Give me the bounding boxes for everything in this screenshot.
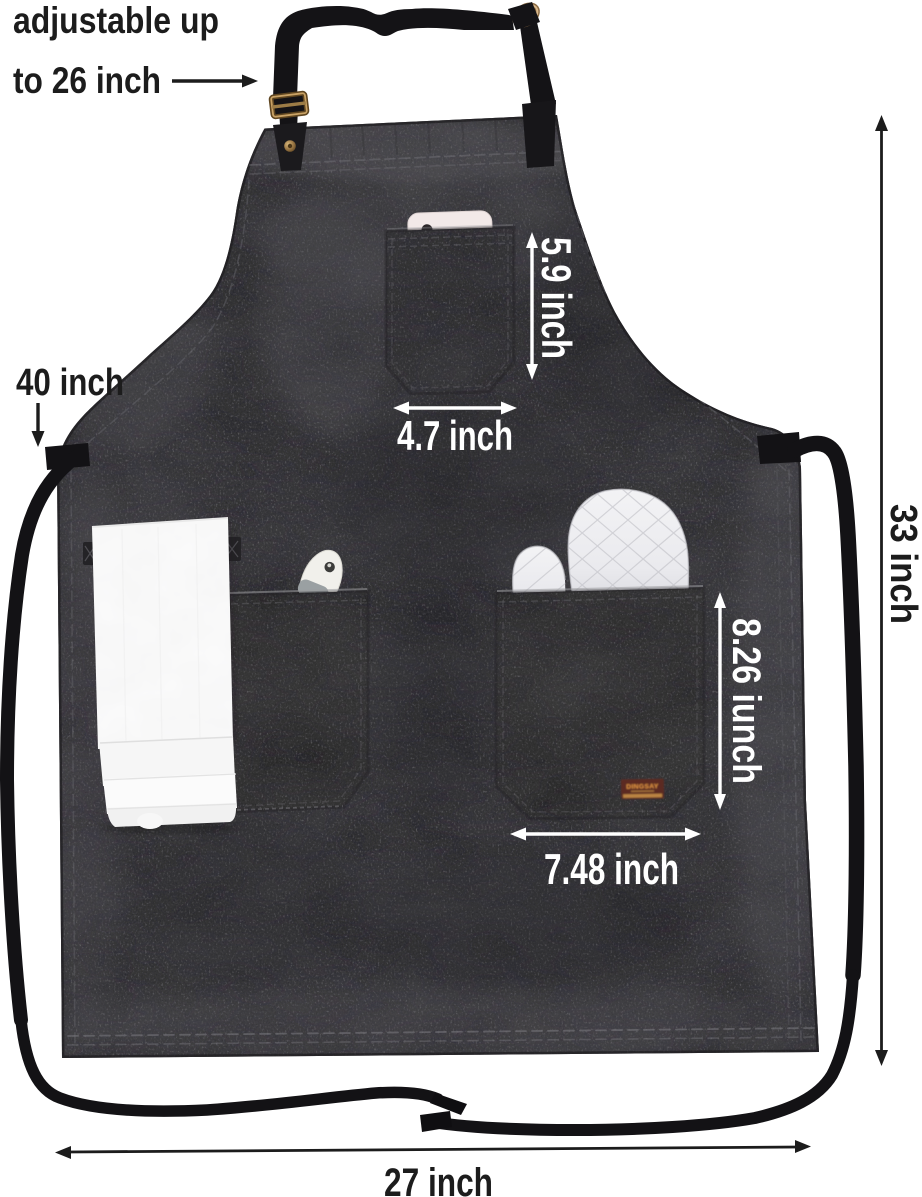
svg-text:33 inch: 33 inch (882, 504, 922, 624)
svg-text:DINGSAY: DINGSAY (626, 783, 659, 791)
svg-text:adjustable up: adjustable up (13, 0, 219, 41)
svg-text:5.9 inch: 5.9 inch (533, 237, 580, 359)
svg-text:7.48 inch: 7.48 inch (544, 845, 679, 894)
svg-text:8.26 iunch: 8.26 iunch (724, 618, 768, 784)
svg-text:to 26 inch: to 26 inch (13, 60, 161, 101)
svg-text:40 inch: 40 inch (16, 362, 124, 404)
svg-text:4.7 inch: 4.7 inch (397, 412, 513, 459)
svg-text:27 inch: 27 inch (384, 1161, 493, 1197)
